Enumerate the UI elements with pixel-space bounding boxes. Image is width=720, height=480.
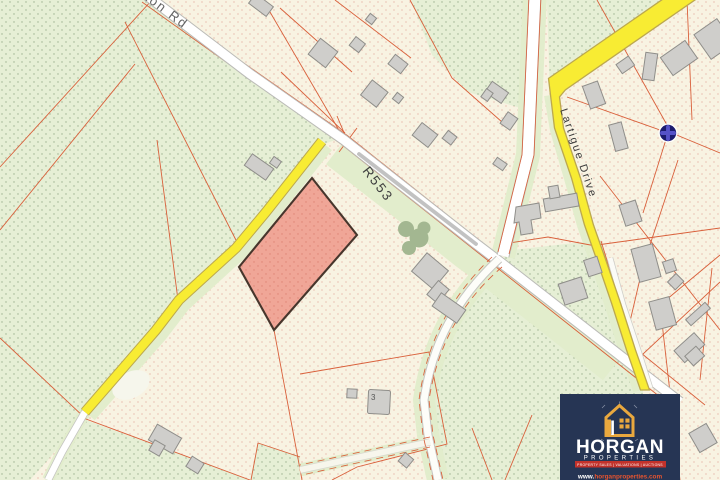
svg-text:www.horganproperties.com: www.horganproperties.com	[577, 474, 663, 480]
svg-text:PROPERTIES: PROPERTIES	[584, 456, 657, 462]
svg-text:PROPERTY SALES | VALUATIONS |: PROPERTY SALES | VALUATIONS | AUCTIONS	[577, 463, 663, 467]
svg-text:3: 3	[371, 393, 376, 402]
